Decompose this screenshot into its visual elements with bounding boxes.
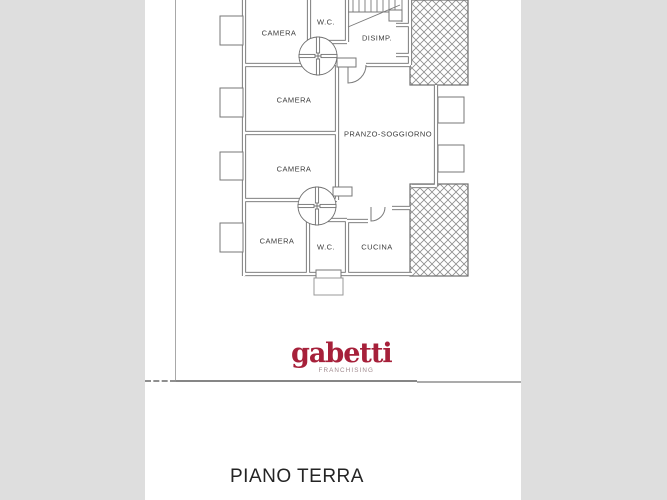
room-label-disimpegno: DISIMP. bbox=[362, 34, 392, 43]
room-label-camera-3: CAMERA bbox=[277, 165, 312, 174]
room-label-camera-2: CAMERA bbox=[277, 96, 312, 105]
room-label-camera-4: CAMERA bbox=[260, 237, 295, 246]
screenshot-root: CAMERA W.C. DISIMP. CAMERA PRANZO-SOGGIO… bbox=[0, 0, 667, 500]
room-label-cucina: CUCINA bbox=[361, 243, 392, 252]
room-label-pranzo-soggiorno: PRANZO-SOGGIORNO bbox=[344, 130, 432, 139]
property-boundary-vertical-line bbox=[175, 0, 176, 382]
boundary-line-light bbox=[417, 381, 521, 383]
boundary-line-dashed bbox=[145, 380, 176, 382]
boundary-line-solid bbox=[176, 380, 417, 382]
room-label-camera-1: CAMERA bbox=[262, 29, 297, 38]
gabetti-logo-text: gabetti bbox=[291, 341, 377, 367]
room-label-wc-bottom: W.C. bbox=[317, 243, 335, 252]
gabetti-logo: gabetti FRANCHISING bbox=[291, 341, 377, 374]
floor-caption: PIANO TERRA bbox=[230, 466, 364, 488]
room-label-wc-top: W.C. bbox=[317, 18, 335, 27]
